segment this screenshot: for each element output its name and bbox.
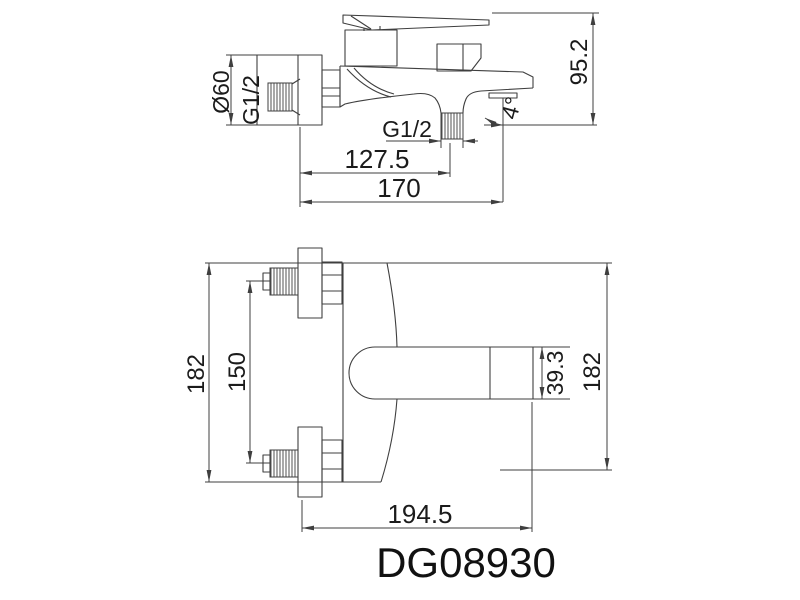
cartridge-housing bbox=[345, 30, 397, 66]
dim-overall-depth: 194.5 bbox=[302, 402, 532, 532]
dim-label-overall-height-right: 182 bbox=[579, 352, 606, 392]
dim-overall-height-left: 182 bbox=[183, 263, 343, 482]
diverter-knob bbox=[437, 44, 481, 71]
handle-plan bbox=[349, 347, 533, 399]
inlet-top bbox=[263, 248, 342, 318]
drawing-sheet: Ø60 G1/2 G1/2 127.5 170 4° bbox=[0, 0, 800, 600]
dim-spout-angle: 4° bbox=[484, 94, 597, 202]
dim-label-spout-angle: 4° bbox=[496, 94, 527, 122]
dim-label-inlet-thread: G1/2 bbox=[238, 75, 264, 125]
model-number: DG08930 bbox=[376, 539, 556, 586]
dim-label-handle-width: 39.3 bbox=[542, 351, 568, 396]
dim-label-body-height: 95.2 bbox=[566, 39, 593, 86]
dim-handle-width: 39.3 bbox=[533, 347, 570, 399]
dim-label-escutcheon-diameter: Ø60 bbox=[208, 70, 234, 113]
handle-lever bbox=[343, 15, 489, 31]
side-view: Ø60 G1/2 G1/2 127.5 170 4° bbox=[208, 13, 599, 207]
faucet-body-plan bbox=[343, 263, 397, 482]
dim-overall-height-right: 182 bbox=[387, 263, 612, 470]
wall-flange bbox=[257, 55, 322, 125]
dim-label-inlet-centers: 150 bbox=[224, 352, 251, 392]
dim-label-overall-depth: 194.5 bbox=[387, 499, 452, 529]
dim-label-outlet-thread: G1/2 bbox=[382, 116, 432, 142]
mounting-nut bbox=[322, 70, 340, 107]
dim-escutcheon: Ø60 G1/2 bbox=[208, 55, 264, 125]
dim-inlet-centers: 150 bbox=[224, 281, 270, 463]
dim-spout-length: 170 bbox=[300, 173, 503, 203]
dim-label-spout-length: 170 bbox=[377, 173, 420, 203]
shower-outlet-thread bbox=[441, 113, 463, 139]
inlet-thread-hatch bbox=[268, 83, 292, 111]
dim-label-outlet-offset: 127.5 bbox=[344, 144, 409, 174]
front-view: 182 150 39.3 182 194.5 bbox=[183, 248, 612, 532]
faucet-technical-drawing: Ø60 G1/2 G1/2 127.5 170 4° bbox=[0, 0, 800, 600]
inlet-bottom bbox=[263, 427, 342, 497]
dim-label-overall-height-left: 182 bbox=[183, 354, 210, 394]
